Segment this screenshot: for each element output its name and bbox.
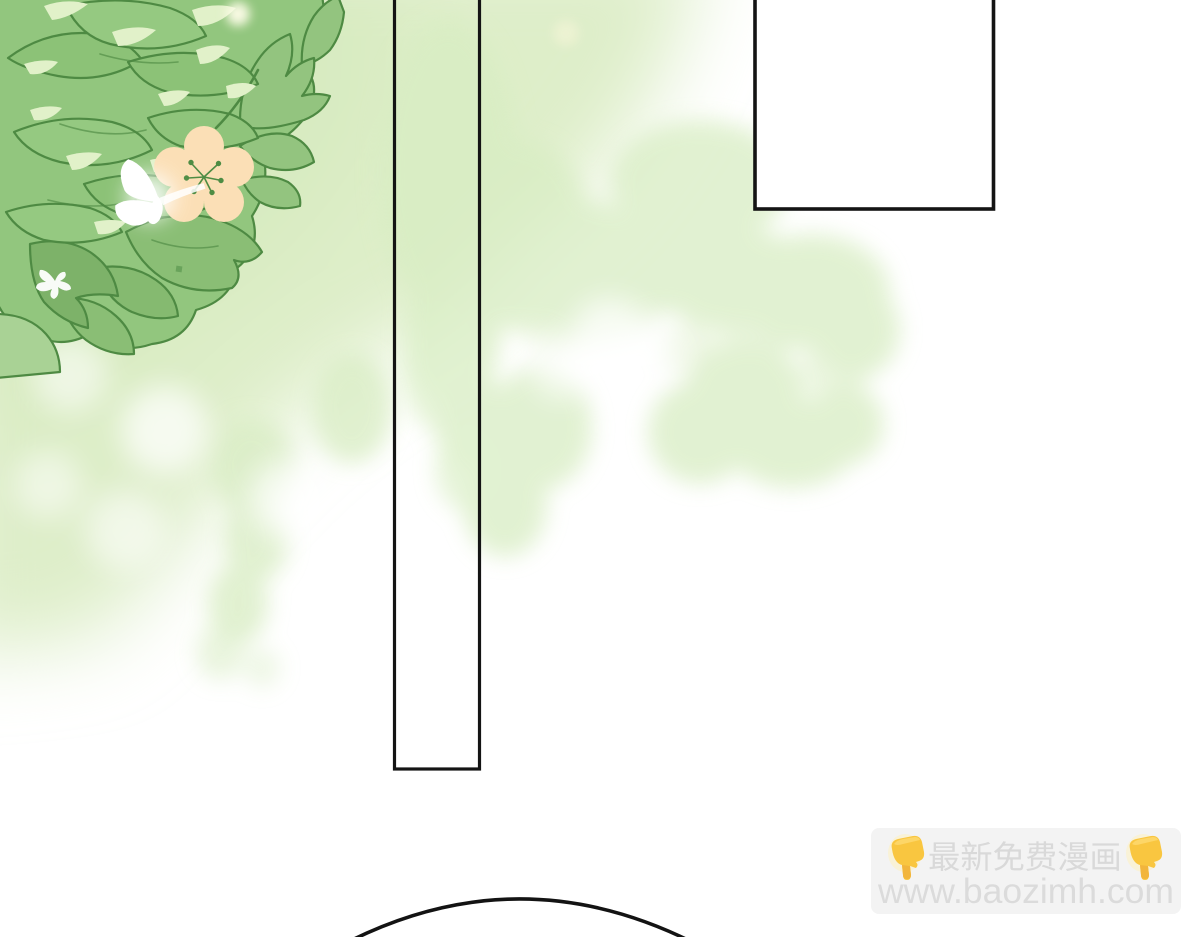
svg-text:www.baozimh.com: www.baozimh.com: [877, 871, 1174, 911]
